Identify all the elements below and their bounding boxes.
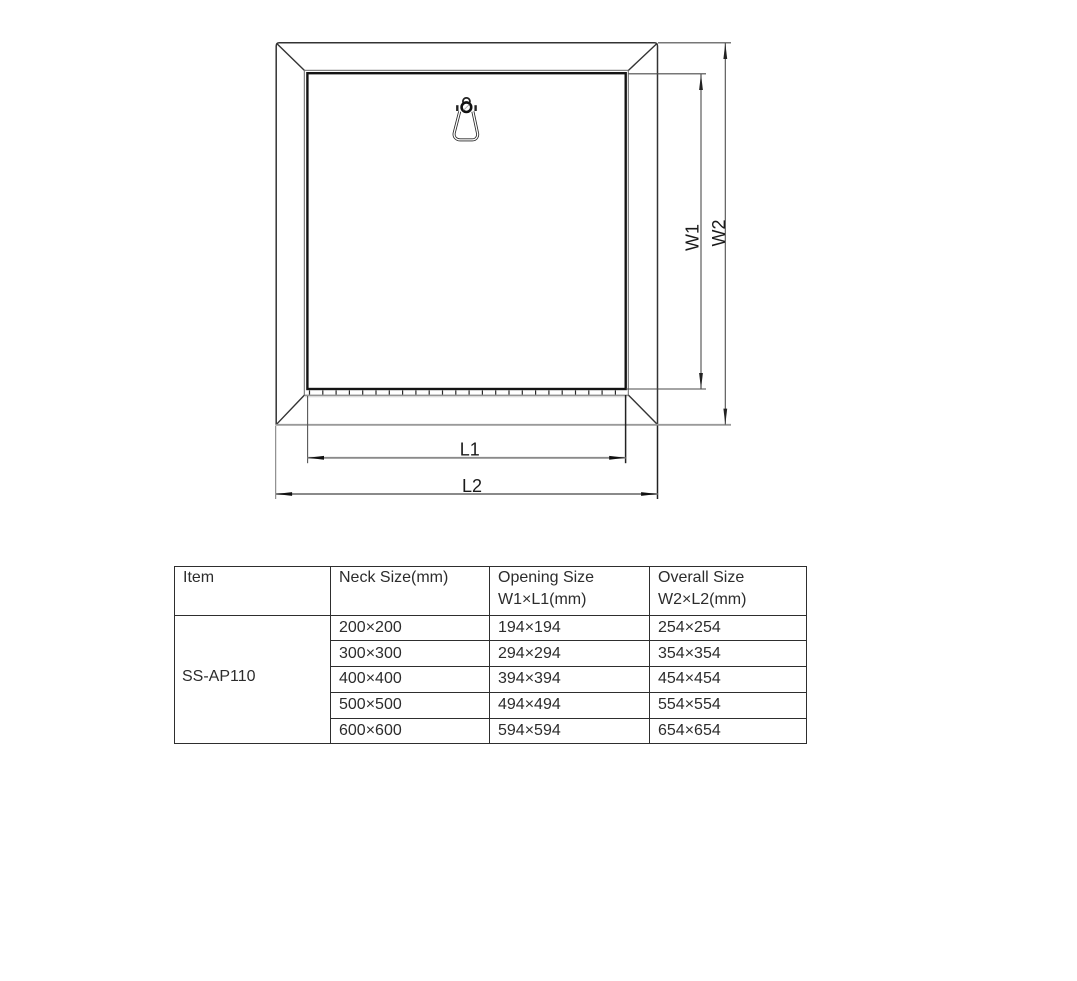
svg-text:L2: L2 [462,476,482,496]
svg-text:W1: W1 [683,224,703,251]
svg-text:W2: W2 [709,220,729,247]
svg-text:L1: L1 [460,439,480,459]
